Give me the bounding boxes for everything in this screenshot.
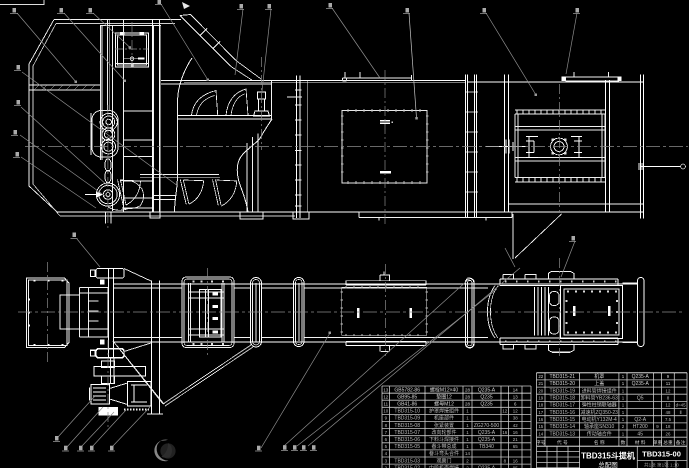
svg-text:16: 16 [502,430,507,435]
svg-text:共1张 第1张 1:10: 共1张 第1张 1:10 [644,462,679,468]
svg-text:进料管焊接组件: 进料管焊接组件 [582,387,617,394]
svg-text:备注: 备注 [676,439,686,446]
svg-text:TBD315-13: TBD315-13 [550,431,576,437]
svg-text:21: 21 [538,381,543,386]
svg-text:9: 9 [385,416,388,421]
svg-text:6: 6 [514,402,517,407]
svg-text:1: 1 [622,403,625,408]
svg-text:4: 4 [385,451,388,456]
svg-text:中段机壳焊接: 中段机壳焊接 [429,464,459,468]
svg-text:TBD315-14: TBD315-14 [550,424,576,430]
svg-text:GB41-86: GB41-86 [397,402,417,408]
svg-text:总配图: 总配图 [598,460,618,468]
svg-text:21: 21 [513,437,518,442]
svg-text:28: 28 [465,394,470,399]
svg-text:17: 17 [538,410,543,415]
svg-text:28: 28 [465,402,470,407]
svg-text:2: 2 [466,458,469,463]
svg-text:TBD315-06: TBD315-06 [394,437,420,443]
svg-text:11: 11 [666,381,671,386]
svg-text:Q235-A: Q235-A [478,430,496,436]
svg-text:总重: 总重 [663,439,673,446]
svg-text:TB340: TB340 [479,444,494,450]
svg-text:ZG270-500: ZG270-500 [474,423,500,429]
svg-text:Q5: Q5 [637,396,644,402]
svg-text:18: 18 [538,403,543,408]
svg-text:22: 22 [538,374,543,379]
svg-text:45: 45 [637,431,643,437]
svg-text:1: 1 [622,396,625,401]
svg-text:12: 12 [513,409,518,414]
svg-text:13: 13 [513,394,518,399]
svg-text:HT200: HT200 [633,424,648,430]
svg-text:畚斗弯头合件: 畚斗弯头合件 [429,450,459,457]
svg-text:TBD315-05: TBD315-05 [394,444,420,450]
svg-text:轴承座SN310: 轴承座SN310 [584,423,615,430]
svg-text:改向轮部件: 改向轮部件 [431,429,456,436]
svg-text:护罩焊接组件: 护罩焊接组件 [429,408,459,415]
svg-text:TBD315-16: TBD315-16 [550,410,576,416]
svg-text:观察门: 观察门 [436,457,451,464]
svg-text:1: 1 [622,417,625,422]
svg-text:1: 1 [466,423,469,428]
svg-text:12: 12 [502,409,507,414]
svg-text:12: 12 [666,388,671,393]
svg-text:6: 6 [385,437,388,442]
svg-text:GB95-85: GB95-85 [397,394,417,400]
svg-text:TBD315-00: TBD315-00 [642,450,681,459]
svg-text:12: 12 [383,394,388,399]
svg-text:序号: 序号 [536,439,546,446]
svg-text:张紧装置: 张紧装置 [434,422,454,429]
svg-text:垫圈12: 垫圈12 [436,393,452,400]
svg-text:TBD315-07: TBD315-07 [394,430,420,436]
svg-text:代 号: 代 号 [557,439,568,446]
svg-text:1: 1 [622,410,625,415]
svg-text:16: 16 [513,430,518,435]
svg-text:9: 9 [656,424,659,429]
svg-text:卸料管YB236-63: 卸料管YB236-63 [581,395,618,402]
svg-text:名 称: 名 称 [594,439,605,446]
svg-text:减速机ZQ350-23: 减速机ZQ350-23 [580,409,618,416]
svg-text:TBD315斗提机: TBD315斗提机 [581,451,635,461]
svg-text:8: 8 [667,396,670,401]
svg-text:电动机Y132M-4: 电动机Y132M-4 [582,416,618,423]
svg-text:11: 11 [384,402,389,407]
svg-text:TBD315-09: TBD315-09 [394,416,420,422]
svg-text:1: 1 [466,437,469,442]
svg-text:Q235-A: Q235-A [478,387,496,393]
svg-text:8: 8 [385,423,388,428]
svg-text:材 料: 材 料 [635,439,646,446]
svg-text:26: 26 [666,431,671,436]
svg-text:1: 1 [622,381,625,386]
svg-text:d=45: d=45 [676,403,686,408]
svg-text:传动轴合件: 传动轴合件 [587,430,612,437]
svg-text:5: 5 [385,444,388,449]
svg-text:8: 8 [504,458,507,463]
svg-text:9: 9 [667,374,670,379]
svg-text:Q235: Q235 [480,402,492,408]
svg-text:TBD315-08: TBD315-08 [394,423,420,429]
svg-text:48: 48 [666,410,671,415]
svg-text:65: 65 [513,444,518,449]
svg-text:19: 19 [538,396,543,401]
svg-text:弹性柱销联轴器: 弹性柱销联轴器 [582,402,617,409]
svg-text:Q235-A: Q235-A [632,381,650,387]
svg-text:TBD315-18: TBD315-18 [550,396,576,402]
svg-text:上盖: 上盖 [594,380,604,387]
svg-text:机座部件: 机座部件 [434,415,454,422]
svg-text:TBD315-17: TBD315-17 [550,403,576,409]
svg-text:1: 1 [466,444,469,449]
svg-text:1: 1 [466,430,469,435]
svg-text:螺栓M12×40: 螺栓M12×40 [430,386,458,393]
svg-text:42: 42 [513,423,518,428]
svg-text:13: 13 [383,387,388,392]
svg-text:Q2-A: Q2-A [634,417,646,423]
svg-text:18: 18 [666,424,671,429]
svg-text:TBD315-10: TBD315-10 [394,409,420,415]
svg-text:Q235-A: Q235-A [632,374,650,380]
svg-text:下料斗焊接件: 下料斗焊接件 [429,436,459,443]
svg-text:38: 38 [513,416,518,421]
svg-text:28: 28 [465,387,470,392]
svg-text:1: 1 [466,416,469,421]
svg-text:20: 20 [538,388,543,393]
svg-text:螺母M12: 螺母M12 [434,401,454,408]
svg-text:15: 15 [538,424,543,429]
svg-text:1: 1 [622,374,625,379]
svg-text:TBD315-19: TBD315-19 [550,388,576,394]
svg-text:Ⅱ: Ⅱ [680,410,682,415]
svg-text:1: 1 [466,409,469,414]
svg-text:14: 14 [465,451,470,456]
svg-text:数: 数 [621,439,626,446]
svg-text:TBD315-03: TBD315-03 [394,458,420,464]
svg-text:16: 16 [513,458,518,463]
svg-text:Q235-A: Q235-A [478,437,496,443]
svg-text:7.5: 7.5 [665,417,672,422]
svg-text:Q235: Q235 [480,394,492,400]
svg-text:12: 12 [666,403,671,408]
svg-text:16: 16 [538,417,543,422]
svg-text:2: 2 [622,424,625,429]
svg-text:1: 1 [622,431,625,436]
svg-text:3: 3 [385,458,388,463]
svg-text:TBD315-15: TBD315-15 [550,417,576,423]
svg-text:1: 1 [622,388,625,393]
svg-text:TBD315-21: TBD315-21 [550,374,576,380]
svg-text:10: 10 [383,409,388,414]
svg-text:TBD315-20: TBD315-20 [550,381,576,387]
svg-text:单重: 单重 [653,439,663,446]
svg-text:GB5782-86: GB5782-86 [394,387,420,393]
svg-text:7: 7 [385,430,388,435]
svg-text:14: 14 [513,387,518,392]
svg-text:14: 14 [538,431,543,436]
svg-text:机罩: 机罩 [594,373,604,380]
svg-text:畚斗带总成: 畚斗带总成 [431,443,456,450]
